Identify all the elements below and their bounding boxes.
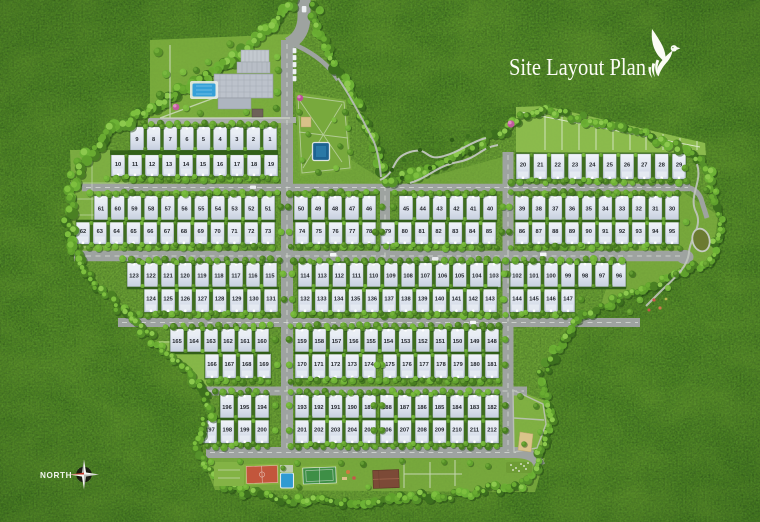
svg-text:39: 39	[519, 207, 525, 213]
svg-text:51: 51	[265, 207, 271, 213]
svg-text:74: 74	[299, 229, 306, 235]
svg-text:196: 196	[222, 405, 232, 411]
svg-text:58: 58	[148, 207, 154, 213]
svg-text:64: 64	[113, 229, 120, 235]
svg-text:19: 19	[268, 162, 274, 168]
svg-text:166: 166	[207, 362, 217, 368]
svg-text:199: 199	[240, 428, 250, 434]
svg-text:150: 150	[453, 339, 463, 345]
svg-text:179: 179	[453, 362, 463, 368]
svg-text:194: 194	[257, 405, 267, 411]
svg-text:9: 9	[135, 137, 138, 143]
svg-text:161: 161	[240, 339, 250, 345]
svg-text:192: 192	[314, 405, 324, 411]
svg-text:38: 38	[536, 207, 542, 213]
svg-text:84: 84	[469, 229, 476, 235]
svg-text:131: 131	[266, 297, 276, 303]
svg-text:76: 76	[332, 229, 338, 235]
svg-text:46: 46	[366, 207, 372, 213]
svg-text:135: 135	[351, 297, 361, 303]
svg-text:5: 5	[202, 137, 205, 143]
svg-text:151: 151	[435, 339, 445, 345]
svg-text:125: 125	[163, 297, 173, 303]
svg-text:107: 107	[421, 274, 431, 280]
svg-text:204: 204	[347, 428, 357, 434]
svg-text:97: 97	[599, 274, 605, 280]
svg-text:NORTH: NORTH	[40, 471, 72, 480]
svg-text:104: 104	[472, 274, 482, 280]
svg-text:16: 16	[217, 162, 223, 168]
svg-text:12: 12	[149, 162, 155, 168]
svg-text:1: 1	[268, 137, 271, 143]
svg-text:212: 212	[487, 428, 497, 434]
svg-text:44: 44	[420, 207, 427, 213]
svg-text:63: 63	[97, 229, 103, 235]
svg-text:49: 49	[315, 207, 321, 213]
svg-text:59: 59	[131, 207, 137, 213]
svg-text:35: 35	[586, 207, 592, 213]
svg-text:126: 126	[181, 297, 191, 303]
svg-text:62: 62	[80, 229, 86, 235]
svg-text:18: 18	[251, 162, 257, 168]
svg-text:175: 175	[385, 362, 395, 368]
svg-text:69: 69	[198, 229, 204, 235]
svg-text:139: 139	[418, 297, 428, 303]
svg-text:130: 130	[249, 297, 259, 303]
svg-text:89: 89	[569, 229, 575, 235]
svg-text:178: 178	[436, 362, 446, 368]
svg-text:42: 42	[453, 207, 459, 213]
svg-text:191: 191	[331, 405, 341, 411]
svg-text:32: 32	[636, 207, 642, 213]
svg-text:37: 37	[552, 207, 558, 213]
svg-text:77: 77	[349, 229, 355, 235]
svg-text:Site Layout Plan: Site Layout Plan	[509, 55, 646, 81]
svg-text:115: 115	[265, 274, 274, 280]
svg-text:72: 72	[248, 229, 254, 235]
svg-text:41: 41	[470, 207, 476, 213]
svg-text:98: 98	[582, 274, 588, 280]
svg-text:92: 92	[619, 229, 625, 235]
svg-text:128: 128	[215, 297, 225, 303]
svg-text:67: 67	[164, 229, 170, 235]
svg-text:91: 91	[602, 229, 608, 235]
svg-text:54: 54	[215, 207, 222, 213]
svg-text:202: 202	[314, 428, 324, 434]
svg-text:99: 99	[565, 274, 571, 280]
svg-text:154: 154	[384, 339, 394, 345]
svg-text:180: 180	[470, 362, 480, 368]
svg-text:140: 140	[435, 297, 445, 303]
svg-text:127: 127	[198, 297, 208, 303]
svg-text:28: 28	[659, 163, 665, 169]
svg-text:198: 198	[223, 428, 233, 434]
svg-text:170: 170	[297, 362, 307, 368]
svg-text:2: 2	[252, 137, 255, 143]
svg-text:169: 169	[259, 362, 269, 368]
svg-text:147: 147	[563, 297, 573, 303]
svg-text:174: 174	[364, 362, 374, 368]
svg-text:26: 26	[624, 163, 630, 169]
svg-text:66: 66	[147, 229, 153, 235]
svg-text:203: 203	[331, 428, 341, 434]
svg-text:144: 144	[512, 297, 522, 303]
svg-text:153: 153	[401, 339, 411, 345]
svg-text:105: 105	[455, 274, 465, 280]
svg-text:53: 53	[231, 207, 237, 213]
svg-text:122: 122	[146, 274, 156, 280]
svg-text:132: 132	[300, 297, 310, 303]
svg-text:10: 10	[115, 162, 121, 168]
svg-text:71: 71	[231, 229, 237, 235]
svg-text:95: 95	[669, 229, 675, 235]
svg-text:109: 109	[386, 274, 396, 280]
svg-text:75: 75	[316, 229, 322, 235]
svg-text:102: 102	[512, 274, 522, 280]
svg-text:87: 87	[536, 229, 542, 235]
svg-text:57: 57	[165, 207, 171, 213]
svg-text:96: 96	[616, 274, 622, 280]
svg-text:100: 100	[546, 274, 556, 280]
svg-text:3: 3	[235, 137, 238, 143]
svg-text:43: 43	[436, 207, 442, 213]
svg-text:181: 181	[487, 362, 497, 368]
svg-text:15: 15	[200, 162, 206, 168]
svg-text:17: 17	[234, 162, 240, 168]
svg-text:159: 159	[297, 339, 307, 345]
svg-text:173: 173	[347, 362, 357, 368]
svg-text:114: 114	[300, 274, 310, 280]
svg-text:158: 158	[315, 339, 325, 345]
svg-text:190: 190	[347, 405, 357, 411]
svg-text:200: 200	[257, 428, 267, 434]
svg-text:65: 65	[130, 229, 136, 235]
svg-text:94: 94	[652, 229, 659, 235]
svg-text:90: 90	[586, 229, 592, 235]
svg-text:208: 208	[417, 428, 427, 434]
svg-text:22: 22	[555, 163, 561, 169]
svg-text:61: 61	[98, 207, 104, 213]
svg-text:164: 164	[189, 339, 199, 345]
svg-text:211: 211	[470, 428, 479, 434]
svg-text:157: 157	[332, 339, 342, 345]
svg-text:25: 25	[607, 163, 613, 169]
svg-text:133: 133	[317, 297, 327, 303]
svg-text:14: 14	[183, 162, 190, 168]
svg-text:45: 45	[403, 207, 409, 213]
svg-text:187: 187	[400, 405, 410, 411]
svg-text:124: 124	[146, 297, 156, 303]
svg-text:48: 48	[332, 207, 338, 213]
svg-text:40: 40	[487, 207, 493, 213]
svg-text:136: 136	[368, 297, 378, 303]
svg-text:113: 113	[318, 274, 327, 280]
svg-text:33: 33	[619, 207, 625, 213]
svg-text:30: 30	[669, 207, 675, 213]
svg-text:81: 81	[419, 229, 425, 235]
svg-text:60: 60	[115, 207, 121, 213]
svg-text:117: 117	[231, 274, 240, 280]
svg-text:31: 31	[652, 207, 658, 213]
svg-text:80: 80	[402, 229, 408, 235]
svg-text:112: 112	[335, 274, 344, 280]
svg-text:209: 209	[435, 428, 445, 434]
svg-text:143: 143	[485, 297, 495, 303]
svg-text:160: 160	[257, 339, 267, 345]
svg-text:108: 108	[403, 274, 413, 280]
svg-text:195: 195	[240, 405, 250, 411]
svg-text:21: 21	[537, 163, 543, 169]
svg-text:68: 68	[181, 229, 187, 235]
svg-text:24: 24	[589, 163, 596, 169]
svg-text:82: 82	[435, 229, 441, 235]
svg-text:121: 121	[163, 274, 173, 280]
svg-text:163: 163	[206, 339, 216, 345]
svg-text:73: 73	[265, 229, 271, 235]
svg-text:36: 36	[569, 207, 575, 213]
svg-text:210: 210	[452, 428, 462, 434]
svg-text:11: 11	[132, 162, 138, 168]
svg-text:83: 83	[452, 229, 458, 235]
svg-text:137: 137	[384, 297, 394, 303]
svg-text:171: 171	[314, 362, 324, 368]
svg-text:56: 56	[181, 207, 187, 213]
svg-text:50: 50	[298, 207, 304, 213]
svg-text:167: 167	[225, 362, 235, 368]
svg-text:149: 149	[470, 339, 480, 345]
svg-text:134: 134	[334, 297, 344, 303]
svg-text:123: 123	[129, 274, 139, 280]
svg-text:156: 156	[349, 339, 359, 345]
svg-text:182: 182	[487, 405, 497, 411]
svg-text:52: 52	[248, 207, 254, 213]
svg-text:193: 193	[297, 405, 307, 411]
svg-text:13: 13	[166, 162, 172, 168]
svg-text:116: 116	[248, 274, 257, 280]
svg-text:111: 111	[352, 274, 361, 280]
svg-text:20: 20	[520, 163, 526, 169]
svg-text:78: 78	[366, 229, 372, 235]
svg-text:7: 7	[169, 137, 172, 143]
svg-text:27: 27	[641, 163, 647, 169]
svg-text:176: 176	[402, 362, 412, 368]
svg-text:145: 145	[529, 297, 539, 303]
svg-text:106: 106	[438, 274, 448, 280]
svg-text:155: 155	[366, 339, 376, 345]
svg-text:165: 165	[172, 339, 182, 345]
svg-text:34: 34	[602, 207, 609, 213]
svg-text:8: 8	[152, 137, 155, 143]
svg-text:23: 23	[572, 163, 578, 169]
svg-text:101: 101	[529, 274, 539, 280]
svg-text:184: 184	[452, 405, 462, 411]
svg-text:129: 129	[232, 297, 242, 303]
svg-text:119: 119	[197, 274, 206, 280]
svg-text:183: 183	[470, 405, 480, 411]
svg-text:85: 85	[486, 229, 492, 235]
svg-text:29: 29	[676, 163, 682, 169]
svg-text:186: 186	[417, 405, 427, 411]
svg-text:55: 55	[198, 207, 204, 213]
svg-text:177: 177	[419, 362, 429, 368]
svg-text:118: 118	[214, 274, 223, 280]
svg-text:110: 110	[369, 274, 378, 280]
svg-text:141: 141	[452, 297, 462, 303]
svg-text:201: 201	[297, 428, 307, 434]
svg-text:172: 172	[331, 362, 341, 368]
svg-text:138: 138	[401, 297, 411, 303]
svg-text:120: 120	[180, 274, 190, 280]
svg-text:162: 162	[223, 339, 233, 345]
svg-text:6: 6	[185, 137, 188, 143]
svg-text:93: 93	[636, 229, 642, 235]
svg-text:148: 148	[487, 339, 497, 345]
svg-text:88: 88	[552, 229, 558, 235]
svg-text:47: 47	[349, 207, 355, 213]
svg-text:86: 86	[519, 229, 525, 235]
svg-text:146: 146	[546, 297, 556, 303]
svg-text:152: 152	[418, 339, 428, 345]
svg-text:185: 185	[435, 405, 445, 411]
svg-text:103: 103	[489, 274, 499, 280]
svg-text:70: 70	[214, 229, 220, 235]
svg-text:168: 168	[242, 362, 252, 368]
svg-text:207: 207	[400, 428, 410, 434]
svg-text:142: 142	[468, 297, 478, 303]
